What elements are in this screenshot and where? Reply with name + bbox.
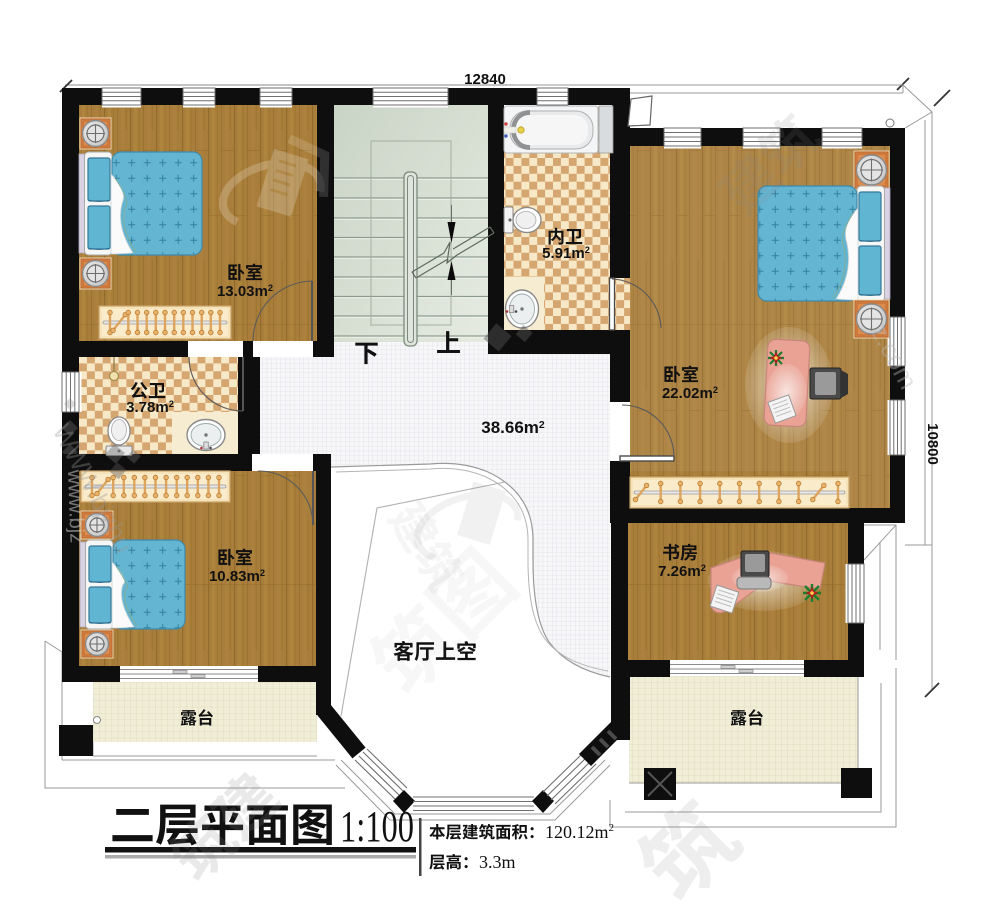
svg-text:13.03m2: 13.03m2 [217, 283, 273, 300]
svg-text:10.83m2: 10.83m2 [209, 568, 265, 585]
svg-text:3.78m2: 3.78m2 [126, 399, 174, 416]
svg-text:1:100: 1:100 [340, 802, 414, 851]
svg-text:www.bjz: www.bjz [63, 468, 88, 543]
svg-text:10800: 10800 [924, 423, 941, 465]
svg-text:120.12m2: 120.12m2 [545, 822, 614, 842]
svg-text:38.66m2: 38.66m2 [481, 418, 545, 437]
svg-text:12840: 12840 [464, 71, 506, 88]
svg-text:3.3m: 3.3m [479, 852, 516, 872]
svg-text:7.26m2: 7.26m2 [658, 563, 706, 580]
svg-text:5.91m2: 5.91m2 [542, 245, 590, 262]
svg-text:22.02m2: 22.02m2 [662, 385, 718, 402]
